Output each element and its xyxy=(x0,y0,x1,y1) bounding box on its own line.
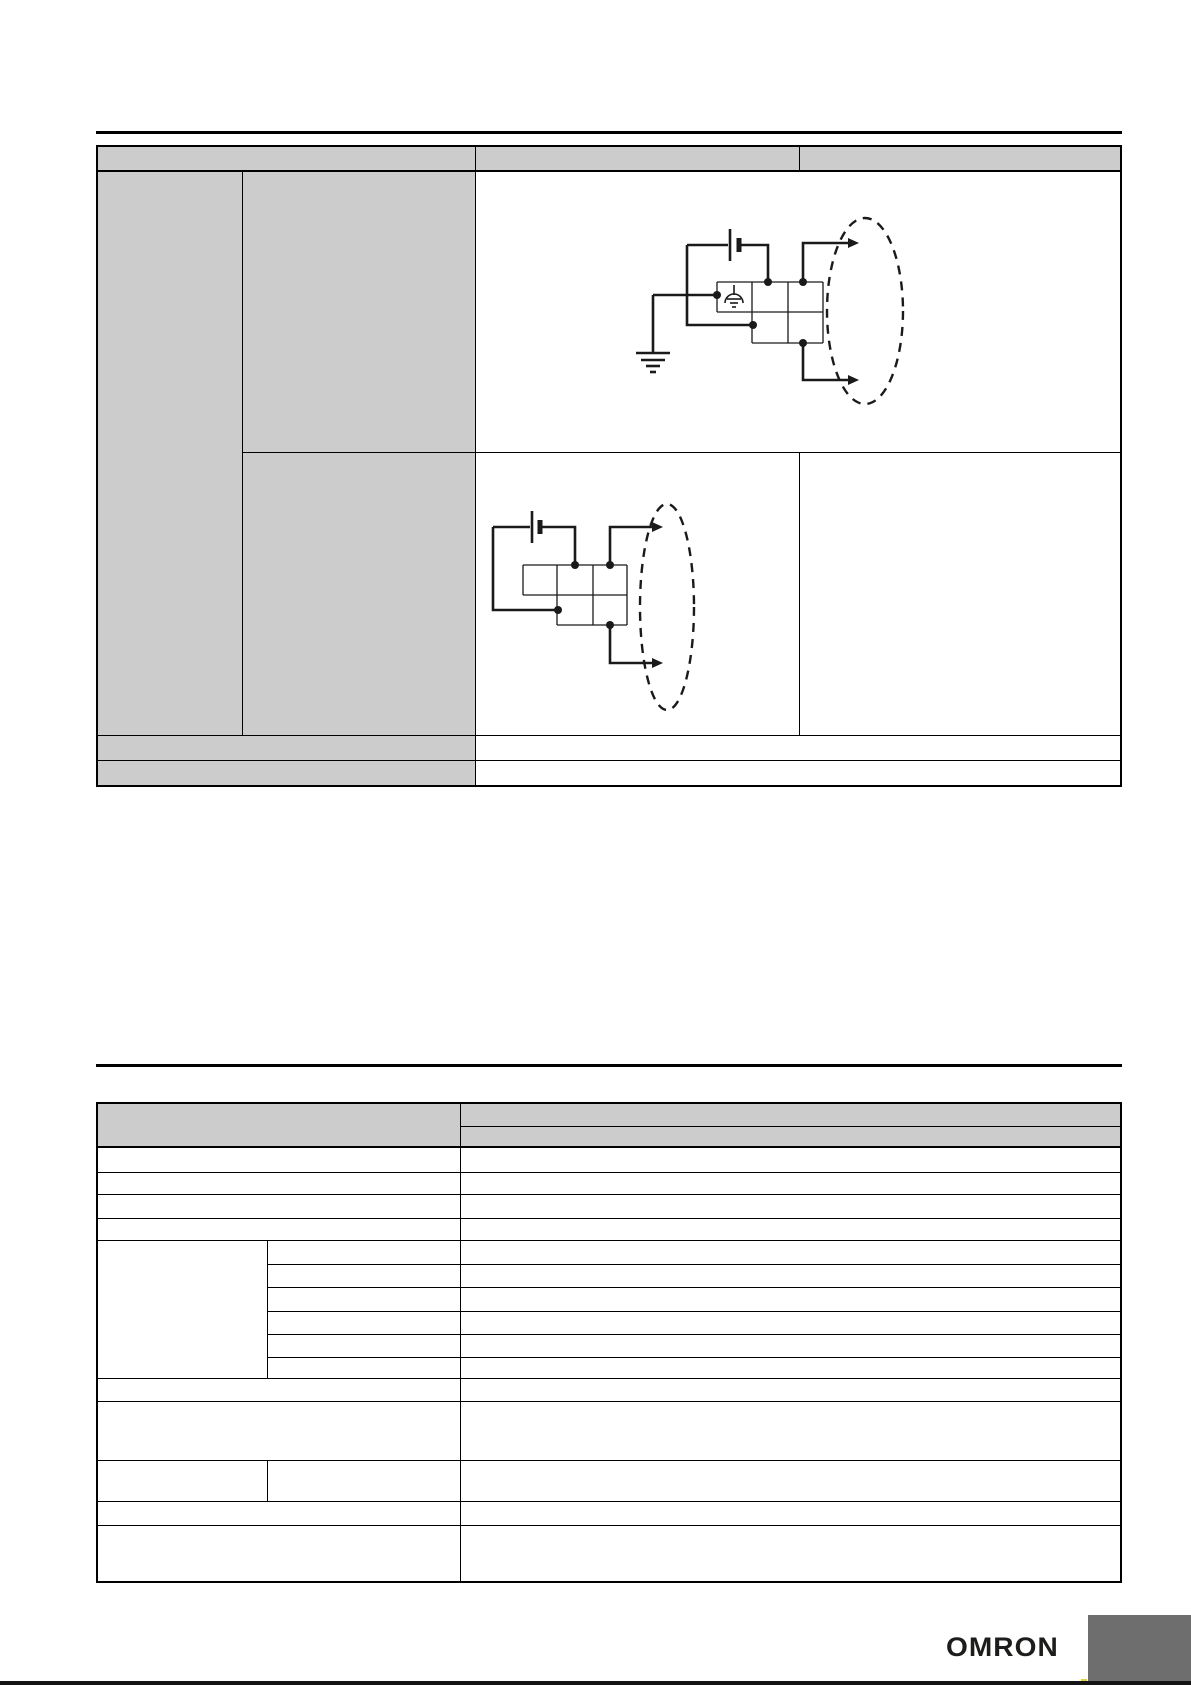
document-page: OMRON xyxy=(0,0,1191,1685)
t2-r1-label xyxy=(98,1148,461,1173)
t1-header-cell-3 xyxy=(800,147,1120,172)
t2-r3-label xyxy=(98,1195,461,1219)
t1-empty-cell-row2 xyxy=(800,453,1120,736)
t1-sublabel-row2 xyxy=(243,453,476,736)
t2-r5-label xyxy=(98,1379,461,1402)
dashed-ellipse-highlight xyxy=(827,218,903,404)
t2-g2-sublabel xyxy=(268,1265,461,1288)
t2-r6-label xyxy=(98,1402,461,1461)
t1-row4-label xyxy=(98,761,476,785)
terminal-block-grid xyxy=(523,565,627,625)
t1-row-label-column xyxy=(98,172,243,736)
omron-logo: OMRON xyxy=(946,1632,1058,1662)
t1-diagram-cell-grounded xyxy=(476,172,1120,453)
battery-icon xyxy=(493,511,575,564)
section-divider-rule-middle xyxy=(96,1064,1122,1067)
t2-r5-value xyxy=(461,1379,1120,1402)
t1-row4-value xyxy=(476,761,1120,785)
dashed-ellipse-highlight xyxy=(640,504,694,710)
t1-row3-label xyxy=(98,736,476,761)
t2-r9-value xyxy=(461,1526,1120,1581)
t2-r4-label xyxy=(98,1219,461,1241)
t2-r3-value xyxy=(461,1195,1120,1219)
earth-ground-icon xyxy=(636,295,670,372)
t2-g2-value xyxy=(461,1265,1120,1288)
t2-r4-value xyxy=(461,1219,1120,1241)
page-bottom-edge xyxy=(0,1681,1191,1685)
functional-earth-icon xyxy=(725,285,743,307)
spec-table-2 xyxy=(96,1102,1122,1583)
t2-g1-sublabel xyxy=(268,1241,461,1265)
t2-g4-value xyxy=(461,1312,1120,1335)
t2-g4-sublabel xyxy=(268,1312,461,1335)
battery-icon xyxy=(687,229,768,281)
t2-r2-value xyxy=(461,1173,1120,1195)
t1-header-cell-1 xyxy=(98,147,476,172)
t2-g5-value xyxy=(461,1335,1120,1358)
t2-r1-value xyxy=(461,1148,1120,1173)
t1-sublabel-row1 xyxy=(243,172,476,453)
t2-r2-label xyxy=(98,1173,461,1195)
t2-g3-sublabel xyxy=(268,1288,461,1312)
t2-group-label xyxy=(98,1241,268,1379)
t2-g1-value xyxy=(461,1241,1120,1265)
terminal-block-grid xyxy=(717,282,823,343)
t2-g5-sublabel xyxy=(268,1335,461,1358)
t2-g6-value xyxy=(461,1358,1120,1379)
t2-g3-value xyxy=(461,1288,1120,1312)
t2-header-value-top xyxy=(461,1104,1120,1127)
t2-r9-label xyxy=(98,1526,461,1581)
wiring-diagram-ungrounded xyxy=(480,490,710,735)
wiring-diagram-grounded xyxy=(600,195,920,410)
t2-header-item xyxy=(98,1104,461,1148)
t1-diagram-cell-ungrounded xyxy=(476,453,800,736)
page-number-box xyxy=(1088,1615,1191,1681)
t2-r7-value xyxy=(461,1461,1120,1502)
t2-r7-label-inner xyxy=(268,1461,461,1502)
t2-r6-value xyxy=(461,1402,1120,1461)
t2-g6-sublabel xyxy=(268,1358,461,1379)
t2-r8-value xyxy=(461,1502,1120,1526)
t2-r8-label xyxy=(98,1502,461,1526)
spec-table-1 xyxy=(96,145,1122,787)
t2-r7-label-outer xyxy=(98,1461,268,1502)
t2-header-value-bottom xyxy=(461,1127,1120,1148)
section-divider-rule-top xyxy=(96,131,1122,134)
t1-header-cell-2 xyxy=(476,147,800,172)
t1-row3-value xyxy=(476,736,1120,761)
